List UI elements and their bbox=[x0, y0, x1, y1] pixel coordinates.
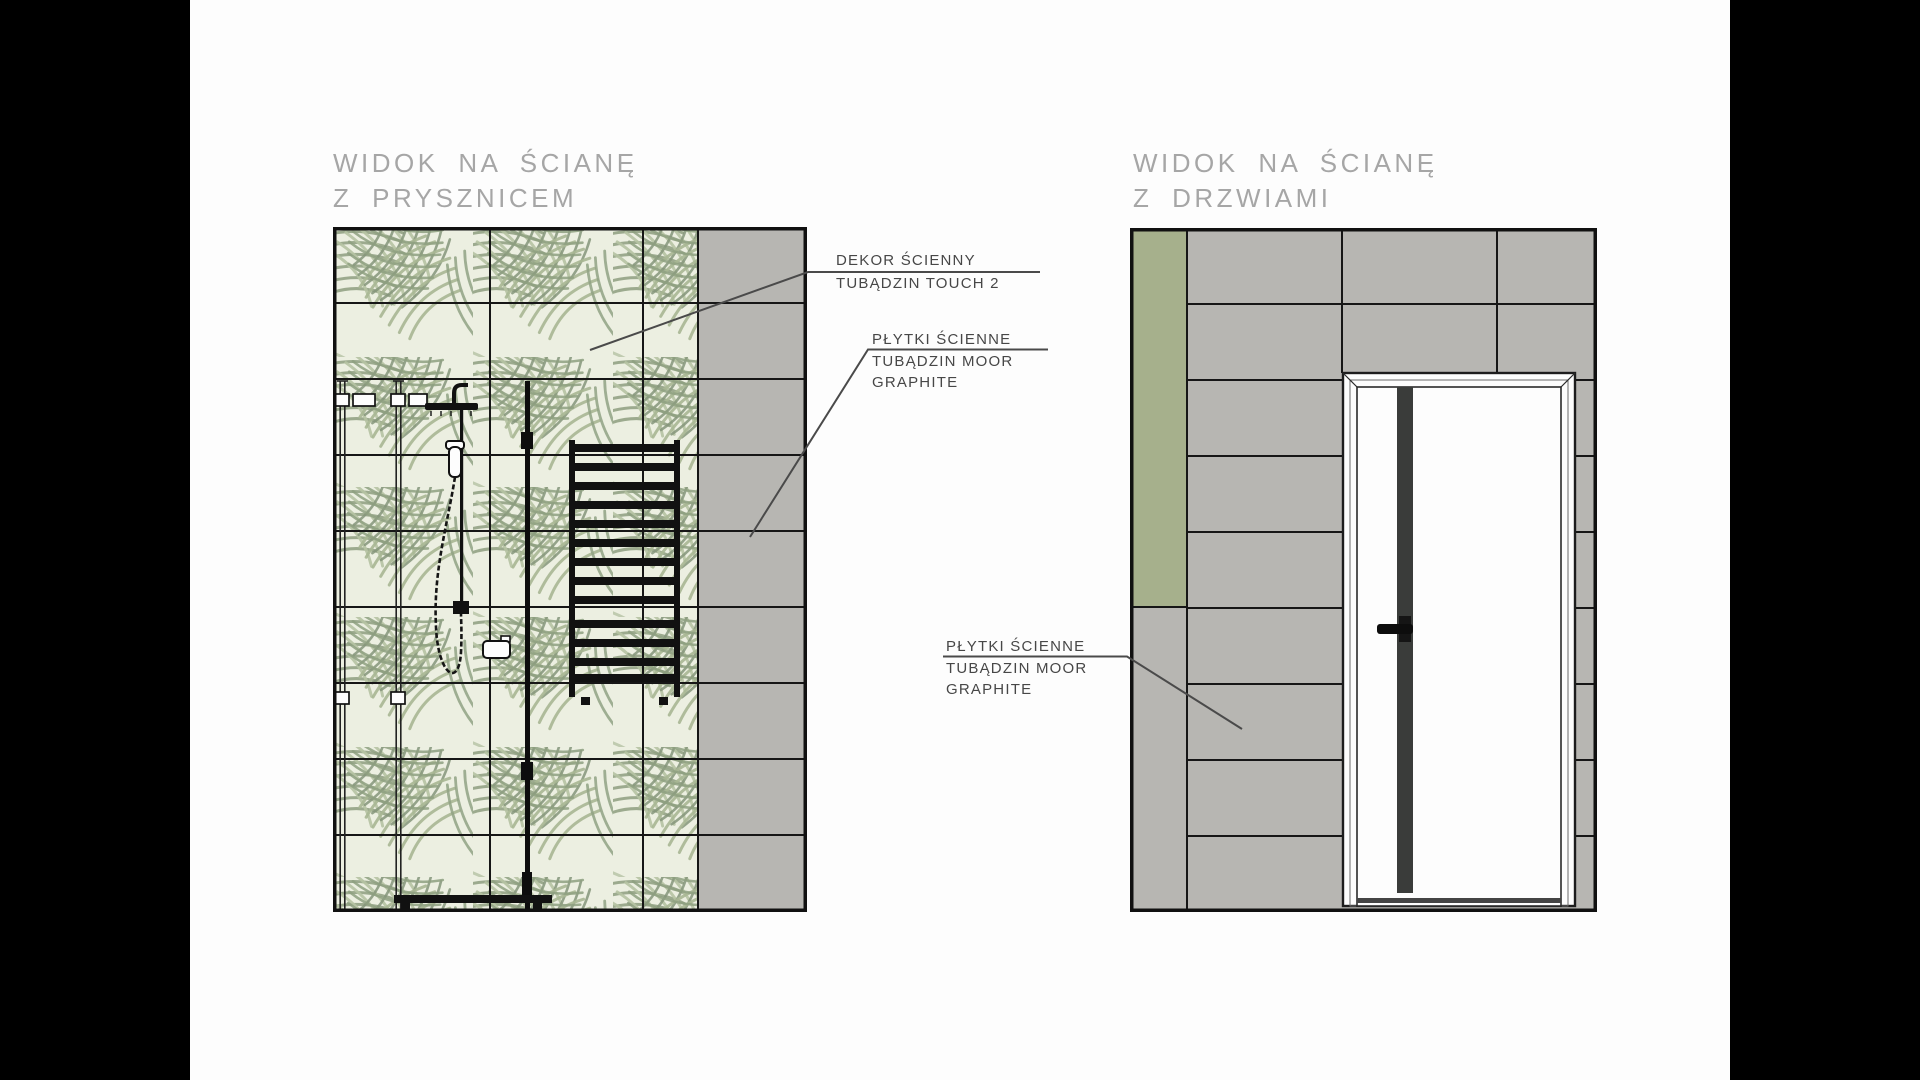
shower-wall-title-line2: Z PRYSZNICEM bbox=[333, 181, 638, 216]
letterbox-right bbox=[1730, 0, 1920, 1080]
green-accent-panel bbox=[1130, 228, 1187, 607]
shower-rail bbox=[460, 410, 463, 608]
label-wall-tiles-shower-line2: TUBĄDZIN MOOR bbox=[872, 353, 1013, 370]
hand-shower bbox=[449, 447, 461, 477]
graphite-tile-column bbox=[698, 227, 807, 912]
shower-wall-elevation bbox=[333, 227, 807, 912]
label-wall-tiles-door-line2: TUBĄDZIN MOOR bbox=[946, 660, 1087, 677]
shower-wall-title-line1: WIDOK NA ŚCIANĘ bbox=[333, 146, 638, 181]
label-wall-decor-line2: TUBĄDZIN TOUCH 2 bbox=[836, 275, 1000, 292]
shower-wall-title: WIDOK NA ŚCIANĘ Z PRYSZNICEM bbox=[333, 146, 638, 216]
door-wall-title-line2: Z DRZWIAMI bbox=[1133, 181, 1438, 216]
door-bottom-gap bbox=[1357, 898, 1561, 903]
door-wall-drawing bbox=[1130, 228, 1597, 912]
door-leaf bbox=[1357, 387, 1561, 906]
shower-wall-drawing bbox=[333, 227, 807, 912]
letterbox-left bbox=[0, 0, 190, 1080]
label-wall-tiles-door-line1: PŁYTKI ŚCIENNE bbox=[946, 638, 1085, 655]
interior-door bbox=[1343, 373, 1575, 906]
shower-diverter bbox=[453, 601, 469, 614]
door-wall-title: WIDOK NA ŚCIANĘ Z DRZWIAMI bbox=[1133, 146, 1438, 216]
label-wall-decor-line1: DEKOR ŚCIENNY bbox=[836, 252, 976, 269]
door-handle bbox=[1377, 624, 1413, 634]
door-wall-elevation bbox=[1130, 228, 1597, 912]
design-board: WIDOK NA ŚCIANĘ Z PRYSZNICEM WIDOK NA ŚC… bbox=[0, 0, 1920, 1080]
label-wall-tiles-shower-line1: PŁYTKI ŚCIENNE bbox=[872, 331, 1011, 348]
door-wall-title-line1: WIDOK NA ŚCIANĘ bbox=[1133, 146, 1438, 181]
label-wall-tiles-shower-line3: GRAPHITE bbox=[872, 374, 958, 391]
rain-shower-head bbox=[425, 403, 478, 410]
label-wall-tiles-door-line3: GRAPHITE bbox=[946, 681, 1032, 698]
